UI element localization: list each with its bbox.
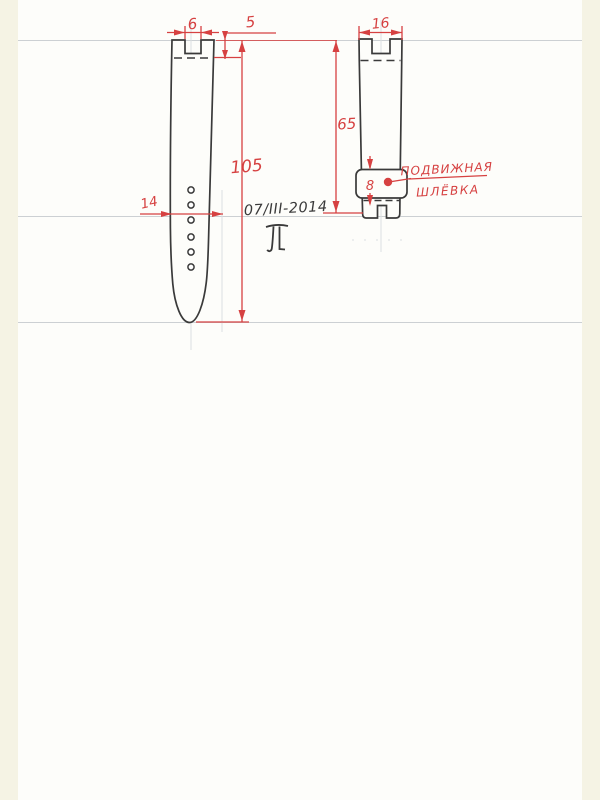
keeper-callout-text-line2: ШЛЁВКА [416,181,480,199]
dim-label-keeper-height: 8 [366,179,374,194]
dim-label-right-length: 65 [337,115,357,134]
dim-label-right-width: 16 [371,15,390,32]
signature-monogram [266,225,288,251]
strap-hole [188,234,194,240]
dim-label-left-width: 14 [139,193,159,212]
left-strap-outline [170,40,214,323]
strap-hole [188,187,194,193]
strap-hole [188,264,194,270]
technical-drawing: 6 5 105 14 16 65 8 ПОДВИЖНАЯ ШЛЁВКА 07/I… [0,0,600,800]
dim-label-notch-width: 6 [187,15,198,34]
date-annotation: 07/III-2014 [244,199,329,219]
keeper-loop [356,170,407,199]
dim-label-notch-depth: 5 [245,13,256,32]
keeper-callout-dot [384,178,392,186]
left-strap [170,40,214,323]
strap-hole [188,217,194,223]
strap-hole [188,249,194,255]
strap-hole [188,202,194,208]
right-strap [356,39,407,218]
dim-label-left-length: 105 [230,156,264,179]
scanned-drawing-page: 6 5 105 14 16 65 8 ПОДВИЖНАЯ ШЛЁВКА 07/I… [0,0,600,800]
